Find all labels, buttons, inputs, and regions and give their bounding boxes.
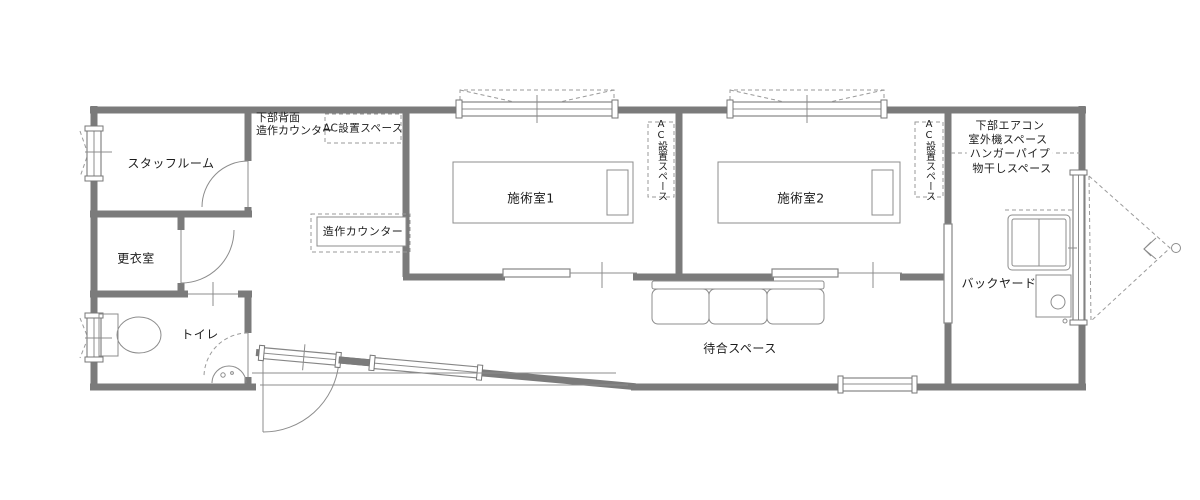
floor-plan-drawing — [0, 0, 1200, 500]
corner-hand-basin — [212, 366, 246, 383]
label-lower-back-counter-line2: 造作カウンター — [256, 124, 333, 137]
window-left-toilet — [80, 313, 112, 362]
entrance-door — [263, 357, 339, 432]
label-waiting-space: 待合スペース — [703, 340, 777, 357]
label-staff-room: スタッフルーム — [127, 155, 214, 172]
loading-door-swing — [1089, 176, 1181, 321]
label-lower-back-counter: 下部背面 造作カウンター — [256, 111, 333, 137]
changing-room-door — [181, 230, 234, 283]
sliding-door-treatment-2 — [772, 262, 902, 288]
label-ac-space-top-left: AC設置スペース — [323, 121, 403, 136]
waiting-sofa — [652, 281, 824, 324]
label-treatment-room-2: 施術室2 — [777, 188, 824, 207]
label-ac-space-right: AC設置スペース — [922, 119, 937, 201]
window-top-1 — [456, 90, 618, 123]
sliding-door-treatment-1 — [503, 262, 637, 288]
label-treatment-room-1: 施術室1 — [507, 188, 554, 207]
label-lower-back-counter-line1: 下部背面 — [256, 111, 333, 124]
label-hanger-pipe: ハンガーパイプ — [967, 145, 1053, 161]
window-top-2 — [727, 90, 887, 123]
outer-walls — [90, 106, 1086, 390]
toilet-lobby-opening — [188, 282, 238, 306]
label-changing-room: 更衣室 — [117, 250, 155, 267]
storefront-slant-glazing — [258, 340, 483, 386]
window-left-staff — [80, 126, 112, 181]
window-bottom — [838, 376, 917, 393]
label-drying-space: 物干しスペース — [972, 160, 1051, 176]
backyard-shelf — [1005, 210, 1077, 270]
interior-walls — [90, 107, 952, 390]
label-backyard: バックヤード — [961, 275, 1036, 292]
toilet-fixture — [99, 314, 161, 356]
label-built-in-counter: 造作カウンター — [323, 223, 404, 239]
label-ac-space-mid: AC設置スペース — [654, 119, 669, 201]
label-toilet: トイレ — [181, 326, 219, 343]
floor-plan: スタッフルーム 更衣室 トイレ 施術室1 施術室2 待合スペース バックヤード … — [0, 0, 1200, 500]
sliding-door-backyard — [944, 224, 952, 323]
backyard-sink — [1036, 275, 1071, 323]
